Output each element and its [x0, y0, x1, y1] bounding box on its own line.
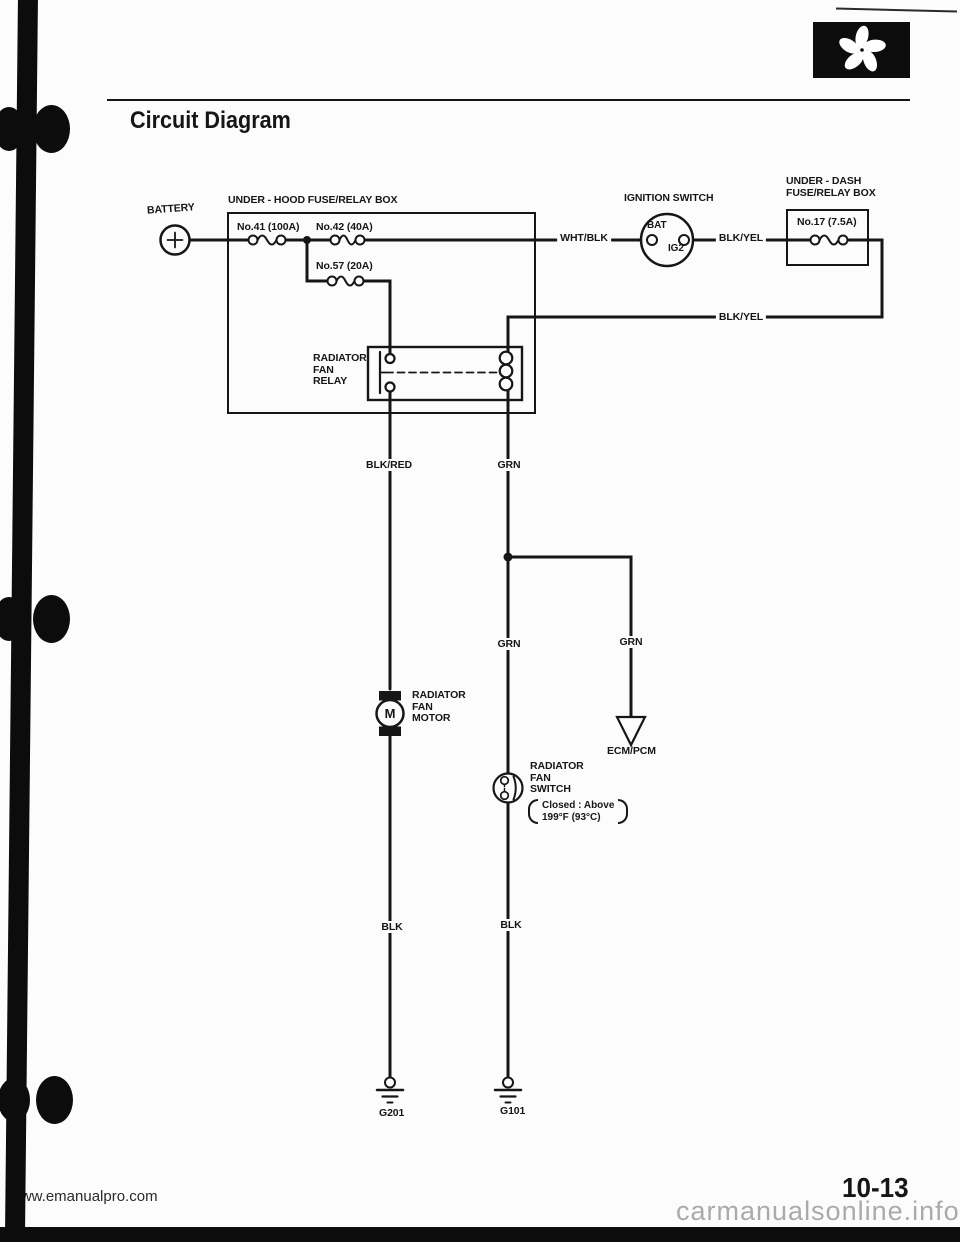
relay-coil-symbol — [500, 352, 513, 391]
bracket-right — [618, 799, 628, 824]
wire-label-blk-2: BLK — [497, 919, 524, 931]
ground-g101-label: G101 — [500, 1105, 525, 1117]
fuse-17-symbol — [811, 236, 848, 245]
fuse-42-symbol — [331, 236, 365, 245]
wire-label-blk-red: BLK/RED — [363, 459, 415, 471]
page-bottom-bar — [0, 1227, 960, 1242]
fuse-17-label: No.17 (7.5A) — [797, 216, 856, 228]
ground-g201-label: G201 — [379, 1107, 404, 1119]
wire-label-blk-yel-1: BLK/YEL — [716, 232, 766, 244]
underhood-box-label: UNDER - HOOD FUSE/RELAY BOX — [228, 194, 397, 206]
wire-grn-ecm — [508, 557, 631, 717]
fuse-57-symbol — [328, 277, 364, 286]
wire-blk-yel-2 — [508, 240, 882, 557]
relay-contact-symbol — [380, 352, 498, 393]
manual-page: Circuit Diagram — [0, 0, 960, 1242]
underdash-box-label: UNDER - DASH FUSE/RELAY BOX — [786, 176, 876, 199]
fuse-41-label: No.41 (100A) — [237, 221, 299, 233]
page-title: Circuit Diagram — [130, 107, 291, 135]
motor-symbol-letter: M — [385, 706, 396, 721]
battery-symbol — [161, 226, 190, 255]
junction-dot — [303, 236, 311, 244]
junction-dot — [504, 553, 513, 562]
ecm-pcm-label: ECM/PCM — [607, 745, 656, 757]
fan-switch-closed-note: Closed : Above 199°F (93°C) — [528, 799, 628, 824]
fuse-41-symbol — [249, 236, 286, 245]
wire-label-wht-blk: WHT/BLK — [557, 232, 611, 244]
ecm-pcm-connector-symbol — [617, 717, 645, 745]
ignition-switch-label: IGNITION SWITCH — [624, 192, 714, 204]
wire-label-grn-3: GRN — [616, 636, 645, 648]
wire-label-grn-1: GRN — [494, 459, 523, 471]
ignition-ig2-terminal-label: IG2 — [668, 243, 684, 254]
wire-label-grn-2: GRN — [494, 638, 523, 650]
radiator-fan-switch-symbol — [494, 774, 523, 803]
radiator-fan-switch-label: RADIATOR FAN SWITCH — [530, 761, 584, 796]
fuse-42-label: No.42 (40A) — [316, 221, 373, 233]
ground-g101-symbol — [495, 1078, 521, 1103]
wire-label-blk-yel-2: BLK/YEL — [716, 311, 766, 323]
wire-label-blk-1: BLK — [378, 921, 405, 933]
binder-ring-icon — [33, 105, 70, 153]
relay-label: RADIATOR FAN RELAY — [313, 353, 367, 388]
binder-ring-icon — [36, 1076, 73, 1124]
ground-g201-symbol — [377, 1078, 403, 1103]
radiator-fan-motor-label: RADIATOR FAN MOTOR — [412, 690, 466, 725]
ignition-bat-terminal-label: BAT — [647, 220, 667, 231]
binder-ring-icon — [33, 595, 70, 643]
bracket-left — [528, 799, 538, 824]
fuse-57-label: No.57 (20A) — [316, 260, 373, 272]
watermark-right: carmanualsonline.info — [676, 1196, 960, 1227]
